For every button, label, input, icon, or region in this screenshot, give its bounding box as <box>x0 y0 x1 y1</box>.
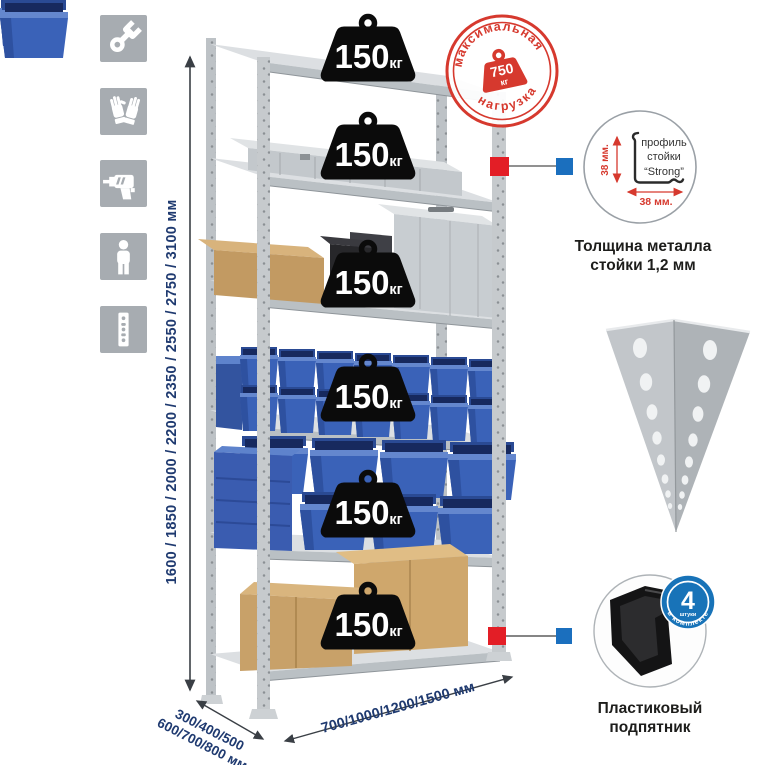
weight-badge-shelf4: 150 кг <box>318 352 418 426</box>
svg-text:150: 150 <box>334 494 389 531</box>
profile-label-2: стойки <box>647 151 681 163</box>
profile-dim-bottom: 38 мм. <box>639 196 672 208</box>
max-load-stamp: максимальная нагрузка 750 кг <box>437 6 567 136</box>
plastic-foot-caption: Пластиковый подпятник <box>598 700 703 738</box>
weight-badge-shelf5: 150 кг <box>318 468 418 542</box>
svg-text:150: 150 <box>334 606 389 643</box>
svg-text:кг: кг <box>389 56 402 72</box>
count-badge-number: 4 <box>681 587 695 615</box>
svg-text:150: 150 <box>334 136 389 173</box>
metal-thickness-caption: Толщина металла стойки 1,2 мм <box>575 238 712 276</box>
profile-label-3: “Strong” <box>644 166 684 178</box>
plastic-foot-callout: 4 штуки в комплекте <box>594 575 715 687</box>
blue-marker-bottom <box>556 628 572 644</box>
weight-badge-shelf6: 150 кг <box>318 580 418 654</box>
angle-post-illustration <box>606 320 750 532</box>
svg-text:150: 150 <box>334 378 389 415</box>
product-infographic: максимальная нагрузка 750 кг 38 мм. 38 м… <box>0 0 765 765</box>
red-marker-top <box>490 157 509 176</box>
weight-badge-shelf2: 150 кг <box>318 110 418 184</box>
red-marker-bottom <box>488 627 506 645</box>
svg-text:кг: кг <box>389 624 402 640</box>
svg-text:кг: кг <box>389 396 402 412</box>
weight-badge-shelf3: 150 кг <box>318 238 418 312</box>
height-options-label: 1600 / 1850 / 2000 / 2200 / 2350 / 2550 … <box>164 200 180 585</box>
profile-dim-side: 38 мм. <box>600 144 611 176</box>
svg-text:150: 150 <box>334 38 389 75</box>
weight-badge-shelf1: 150 кг <box>318 12 418 86</box>
profile-label-1: профиль <box>641 137 687 149</box>
profile-callout: 38 мм. 38 мм. профиль стойки “Strong” <box>584 111 696 223</box>
count-badge-sub: штуки <box>680 612 697 618</box>
svg-text:150: 150 <box>334 264 389 301</box>
blue-marker-top <box>556 158 573 175</box>
svg-text:кг: кг <box>389 282 402 298</box>
svg-text:кг: кг <box>389 154 402 170</box>
svg-text:кг: кг <box>389 512 402 528</box>
count-badge: 4 штуки в комплекте <box>661 575 715 629</box>
